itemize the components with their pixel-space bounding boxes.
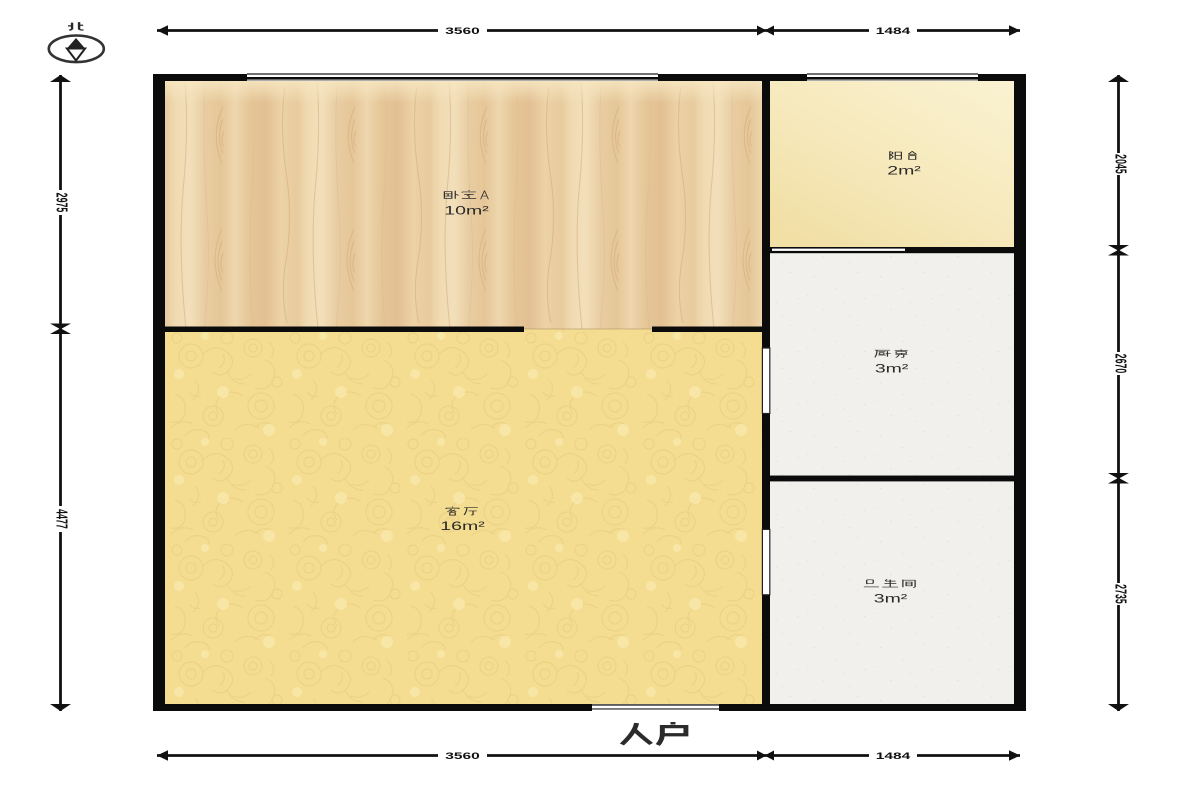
- svg-text:1484: 1484: [876, 26, 910, 36]
- svg-text:3m²: 3m²: [874, 592, 908, 606]
- svg-text:4477: 4477: [53, 509, 70, 529]
- svg-text:1484: 1484: [876, 751, 910, 761]
- svg-text:2670: 2670: [1112, 354, 1129, 374]
- svg-text:3m²: 3m²: [875, 362, 909, 376]
- svg-text:2045: 2045: [1112, 154, 1129, 174]
- svg-text:10m²: 10m²: [444, 204, 489, 218]
- svg-text:2m²: 2m²: [887, 164, 921, 178]
- svg-text:16m²: 16m²: [440, 520, 485, 534]
- svg-text:3560: 3560: [445, 26, 479, 36]
- svg-text:2975: 2975: [53, 193, 70, 213]
- svg-text:2735: 2735: [1112, 584, 1129, 604]
- svg-text:3560: 3560: [445, 751, 479, 761]
